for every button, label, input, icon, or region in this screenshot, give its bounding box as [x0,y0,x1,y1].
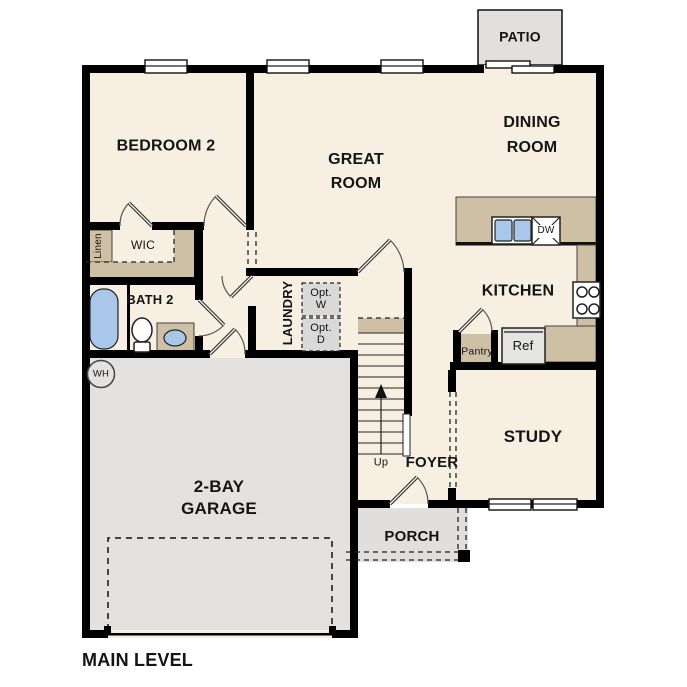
label-dining-room: DINING ROOM [503,110,560,160]
toilet-icon [132,318,152,352]
label-garage: 2-BAY GARAGE [181,476,257,520]
label-dishwasher: DW [537,225,554,237]
bathtub-icon [90,289,118,349]
stove-icon [573,282,600,318]
label-porch: PORCH [384,528,439,546]
vanity-sink-icon [164,330,186,346]
label-opt-dryer: Opt. D [310,322,332,346]
label-wic: WIC [131,238,155,252]
label-refrigerator: Ref [513,338,534,354]
plan-title: MAIN LEVEL [82,650,193,672]
bedroom-window-icon [145,60,187,73]
label-water-heater: WH [93,368,109,379]
label-study: STUDY [504,427,563,447]
label-up: Up [374,456,388,469]
stair-landing [358,318,404,333]
label-bedroom2: BEDROOM 2 [117,136,216,155]
floorplan-drawing [0,0,687,687]
label-kitchen: KITCHEN [482,281,555,300]
study-window-icon [489,499,531,510]
label-laundry: LAUNDRY [280,281,296,345]
label-foyer: FOYER [406,454,459,472]
wic-shelf-bottom [86,262,194,277]
kitchen-sink-icon [492,217,532,244]
greatroom-window2-icon [381,60,423,73]
label-opt-washer: Opt. W [310,287,332,311]
label-great-room: GREAT ROOM [328,148,384,196]
label-linen: Linen [93,233,105,258]
porch-post [458,550,470,562]
study-window2-icon [533,499,577,510]
label-bath2: BATH 2 [126,292,173,308]
greatroom-window-icon [267,60,309,73]
kitchen-counter-ref [545,326,596,362]
floorplan-canvas: BEDROOM 2 GREAT ROOM DINING ROOM KITCHEN… [0,0,687,687]
label-patio: PATIO [499,29,541,46]
label-pantry: Pantry [461,346,493,359]
stair-handrail [403,414,410,456]
